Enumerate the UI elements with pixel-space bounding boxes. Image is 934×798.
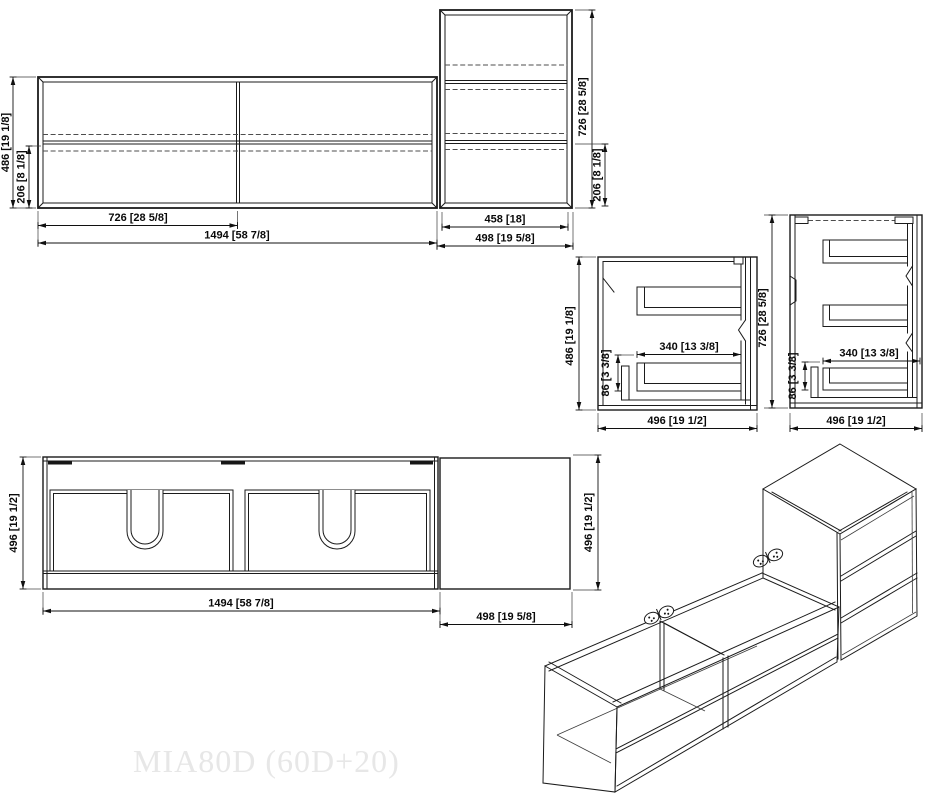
dim-plan-depth: 496 [19 1/2] [8,457,41,589]
dim-label: 496 [19 1/2] [583,493,595,553]
panel-chamfer [603,278,614,292]
dim-plan-width: 1494 [58 7/8] [43,592,440,628]
finger-pull [906,333,913,352]
dim-label: 496 [19 1/2] [826,415,886,427]
mount-bracket-mark [48,461,72,465]
finger-pull [739,320,746,341]
drawer-box [823,240,908,263]
front-view-wide-cabinet [38,77,437,208]
dim-label: 206 [8 1/8] [592,148,604,202]
drawer-gap [616,634,838,749]
dim-section3-height: 726 [28 5/8] [757,215,788,408]
section-view-three-drawer [790,215,922,408]
back-rail [622,366,630,400]
side-panel [543,666,617,792]
dim-section2-depth: 496 [19 1/2] [598,413,757,432]
dim-label: 498 [19 5/8] [475,233,535,245]
dim-label: 340 [13 3/8] [839,348,899,360]
dim-label: 1494 [58 7/8] [204,230,270,242]
dim-label: 726 [28 5/8] [108,212,168,224]
hanging-cleat [795,217,808,224]
dim-section3-drawer-width: 340 [13 3/8] [823,348,920,362]
dim-label: 486 [19 1/8] [564,306,576,366]
dim-label: 458 [18] [485,214,526,226]
dim-label: 498 [19 5/8] [476,611,536,623]
dim-label: 86 [3 3/8] [600,349,612,396]
back-rail [811,367,818,398]
front-view-tall-cabinet [440,10,572,208]
dim-section3-depth: 496 [19 1/2] [790,413,922,432]
dim-label: 726 [28 5/8] [757,288,769,348]
drain-cutout [319,490,355,549]
drawing-canvas: 486 [19 1/8] 206 [8 1/8] 726 [28 5/8] 14… [0,0,934,798]
drawer-box [823,305,908,327]
dim-label: 206 [8 1/8] [16,150,28,204]
model-watermark: MIA80D (60D+20) [133,743,400,779]
plan-view [43,457,570,589]
front-face [615,607,839,792]
dim-front-tall-inner: 458 [18] [442,212,568,231]
dim-label: 1494 [58 7/8] [208,598,274,610]
dim-label: 340 [13 3/8] [659,341,719,353]
dim-front-tall-drawer: 206 [8 1/8] [575,144,608,206]
dim-section2-drawer-width: 340 [13 3/8] [637,341,741,355]
isometric-view [543,444,917,792]
dim-label: 86 [3 3/8] [787,352,799,399]
mount-bracket-mark [221,461,245,465]
dim-label: 496 [19 1/2] [8,493,20,553]
section-view-two-drawer [598,257,757,410]
drawer-box [823,368,908,390]
dim-label: 726 [28 5/8] [577,77,589,137]
mount-bracket [751,546,784,569]
mount-bracket-mark [410,461,433,465]
end-rim [762,573,839,607]
dim-label: 486 [19 1/8] [0,113,12,173]
side-cabinet-plan [440,458,570,589]
hanging-cleat [895,217,913,224]
dim-plan-side-depth: 496 [19 1/2] [573,455,598,590]
drain-cutout [127,490,163,549]
dim-plan-side-width: 498 [19 5/8] [440,592,572,628]
dim-section2-height: 486 [19 1/8] [564,257,596,410]
technical-drawing: 486 [19 1/8] 206 [8 1/8] 726 [28 5/8] 14… [0,0,934,798]
finger-pull [906,266,913,286]
dim-label: 496 [19 1/2] [647,415,707,427]
dim-section3-drawer-depth: 86 [3 3/8] [787,352,820,399]
